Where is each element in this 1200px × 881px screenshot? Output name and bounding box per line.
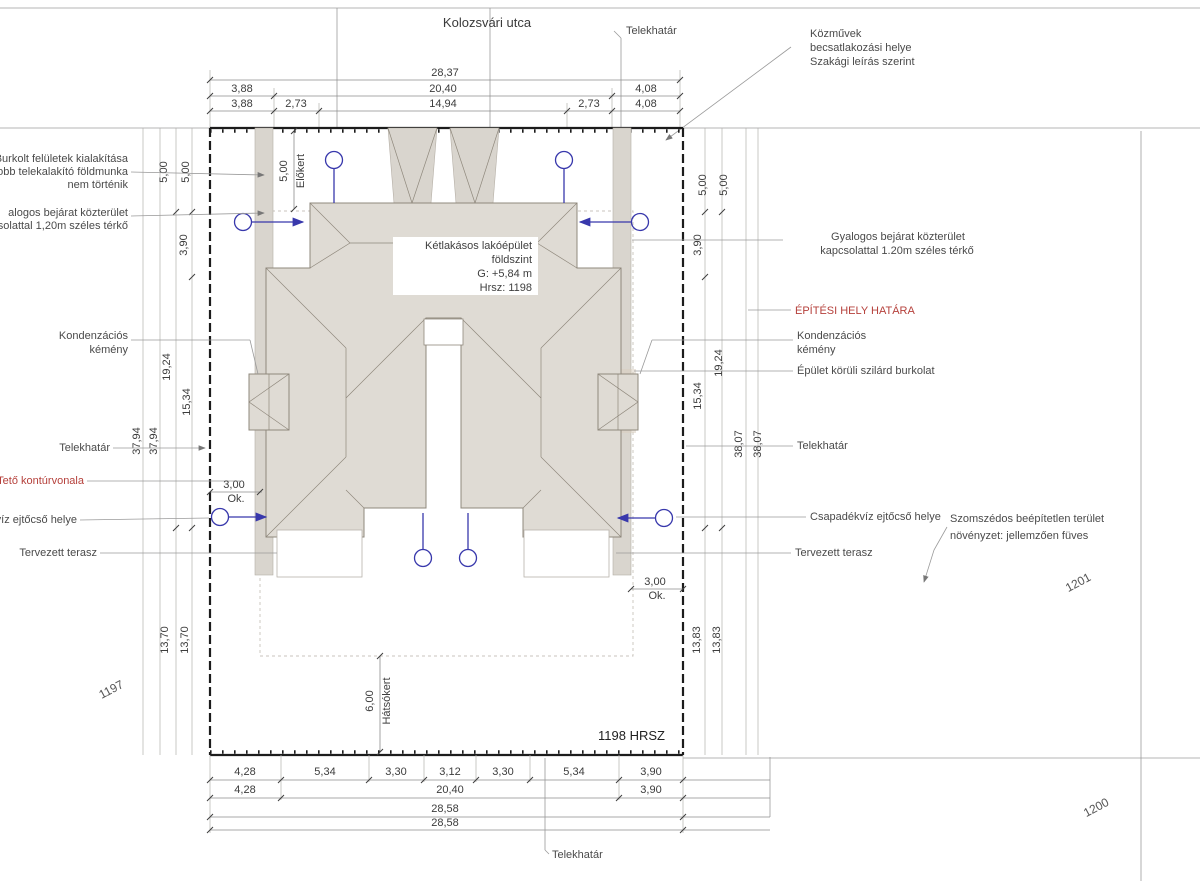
label-burkolat-right: Épület körüli szilárd burkolat — [797, 364, 935, 377]
dim-right-3807a: 38,07 — [733, 430, 745, 458]
dim-right-500b: 5,00 — [718, 174, 730, 195]
dim-left-3794b: 37,94 — [148, 427, 160, 455]
dim-right-390: 3,90 — [692, 234, 704, 255]
parcel-number-1200: 1200 — [1081, 795, 1111, 820]
label-kemeny-right-1: Kondenzációs — [797, 330, 867, 342]
dim-top-c1: 3,88 — [231, 98, 252, 110]
label-kemeny-left-1: Kondenzációs — [59, 330, 129, 342]
dim-bot-r1-7: 3,90 — [640, 766, 661, 778]
dim-bot-r4: 28,58 — [431, 817, 459, 829]
top-dimensions: 28,37 3,88 20,40 4,08 3,88 2,73 14,94 2,… — [207, 67, 683, 128]
utility-note-line1: Közművek — [810, 28, 862, 40]
dim-hatsokert-value: 6,00 — [364, 690, 376, 711]
dim-bot-r1-6: 5,34 — [563, 766, 584, 778]
label-bejarat-left-1: alogos bejárat közterület — [8, 207, 128, 219]
building-label: Kétlakásos lakóépület földszint G: +5,84… — [393, 237, 538, 295]
bottom-dimensions: 4,28 5,34 3,30 3,12 3,30 5,34 3,90 4,28 … — [207, 755, 770, 861]
label-kemeny-left-2: kémény — [89, 344, 128, 356]
left-dimensions: 5,00 5,00 3,90 19,24 15,34 37,94 37,94 1… — [131, 161, 193, 653]
label-szomszedos-1: Szomszédos beépítetlen terület — [950, 513, 1104, 525]
dim-bot-r1-2: 5,34 — [314, 766, 335, 778]
dim-right-1534: 15,34 — [692, 382, 704, 410]
street-name: Kolozsvári utca — [443, 15, 532, 30]
right-labels: Gyalogos bejárat közterület kapcsolattal… — [616, 231, 1104, 582]
dim-bot-r1-1: 4,28 — [234, 766, 255, 778]
dim-elokert-label: Előkert — [295, 154, 307, 188]
dim-left-390: 3,90 — [178, 234, 190, 255]
dim-bot-r2-3: 3,90 — [640, 784, 661, 796]
right-dimensions: 5,00 5,00 3,90 19,24 15,34 38,07 38,07 1… — [691, 174, 764, 653]
entry-vestibule — [424, 319, 463, 345]
dim-right-3807b: 38,07 — [752, 430, 764, 458]
dim-top-b2: 20,40 — [429, 83, 457, 95]
label-burkolt-1: Burkolt felületek kialakítása — [0, 153, 129, 165]
dim-bot-r1-4: 3,12 — [439, 766, 460, 778]
label-terasz-right: Tervezett terasz — [795, 547, 873, 559]
dim-bot-r1-3: 3,30 — [385, 766, 406, 778]
dim-left-1370a: 13,70 — [159, 626, 171, 654]
dim-hatsokert-label: Hátsókert — [381, 677, 393, 724]
terraces — [277, 530, 609, 577]
utility-note-line3: Szakági leírás szerint — [810, 56, 915, 68]
dim-left-1924: 19,24 — [161, 353, 173, 381]
label-burkolt-2: vobb telekalakító földmunka — [0, 166, 129, 178]
hrsz-label: 1198 HRSZ — [598, 728, 665, 743]
label-szomszedos-2: növényzet: jellemzően füves — [950, 530, 1089, 542]
label-bejarat-left-2: pcsolattal 1,20m széles térkő — [0, 220, 128, 232]
dim-top-c4: 2,73 — [578, 98, 599, 110]
dim-top-c2: 2,73 — [285, 98, 306, 110]
dim-bot-r3: 28,58 — [431, 803, 459, 815]
dim-bot-r2-1: 4,28 — [234, 784, 255, 796]
dim-right-500a: 5,00 — [697, 174, 709, 195]
label-telekhatar-right: Telekhatár — [797, 440, 848, 452]
building-label-line1: Kétlakásos lakóépület — [425, 240, 532, 252]
dim-top-c5: 4,08 — [635, 98, 656, 110]
dim-left-1370b: 13,70 — [179, 626, 191, 654]
label-burkolt-3: nem történik — [67, 179, 128, 191]
utility-note: Közművek becsatlakozási helye Szakági le… — [666, 28, 915, 140]
dim-right-1383a: 13,83 — [691, 626, 703, 654]
dim-elokert-value: 5,00 — [278, 160, 290, 181]
dim-top-c3: 14,94 — [429, 98, 457, 110]
site-plan-page: Kolozsvári utca Telekhatár Közművek becs… — [0, 0, 1200, 881]
dim-ok-right-label: Ok. — [648, 590, 665, 602]
site-plan-drawing: Kolozsvári utca Telekhatár Közművek becs… — [0, 0, 1200, 881]
building-label-line4: Hrsz: 1198 — [480, 282, 532, 294]
label-teto-konturvonala: Tető kontúrvonala — [0, 475, 85, 487]
parcel-numbers: 1197 1201 1200 — [96, 570, 1111, 820]
parcel-number-1197: 1197 — [96, 677, 126, 702]
building-label-line3: G: +5,84 m — [477, 268, 532, 280]
building-label-line2: földszint — [492, 254, 532, 266]
dim-left-500b: 5,00 — [180, 161, 192, 182]
dim-left-1534: 15,34 — [181, 388, 193, 416]
dim-top-b1: 3,88 — [231, 83, 252, 95]
dim-left-500a: 5,00 — [158, 161, 170, 182]
dim-ok-left-value: 3,00 — [223, 479, 244, 491]
label-epitesi-hely: ÉPÍTÉSI HELY HATÁRA — [795, 304, 915, 317]
utility-note-line2: becsatlakozási helye — [810, 42, 912, 54]
parcel-number-1201: 1201 — [1063, 570, 1093, 595]
dim-left-3794a: 37,94 — [131, 427, 143, 455]
dim-right-1383b: 13,83 — [711, 626, 723, 654]
dim-right-1924: 19,24 — [713, 349, 725, 377]
dim-top-total: 28,37 — [431, 67, 459, 79]
dim-bot-r2-2: 20,40 — [436, 784, 464, 796]
label-bejarat-right-1: Gyalogos bejárat közterület — [831, 231, 965, 243]
label-terasz-left: Tervezett terasz — [19, 547, 97, 559]
telekhatar-top-label: Telekhatár — [626, 25, 677, 37]
top-telekhatar-note: Telekhatár — [614, 25, 677, 128]
dim-ok-left-label: Ok. — [227, 493, 244, 505]
label-telekhatar-left: Telekhatár — [59, 442, 110, 454]
label-bejarat-right-2: kapcsolattal 1.20m széles térkő — [820, 245, 973, 257]
dim-top-b3: 4,08 — [635, 83, 656, 95]
dim-ok-right-value: 3,00 — [644, 576, 665, 588]
label-kemeny-right-2: kémény — [797, 344, 836, 356]
left-terrace — [277, 530, 362, 577]
right-terrace — [524, 530, 609, 577]
label-telekhatar-bottom: Telekhatár — [552, 849, 603, 861]
dim-bot-r1-5: 3,30 — [492, 766, 513, 778]
label-ejtocso-left: kvíz ejtőcső helye — [0, 514, 77, 526]
label-ejtocso-right: Csapadékvíz ejtőcső helye — [810, 511, 941, 523]
